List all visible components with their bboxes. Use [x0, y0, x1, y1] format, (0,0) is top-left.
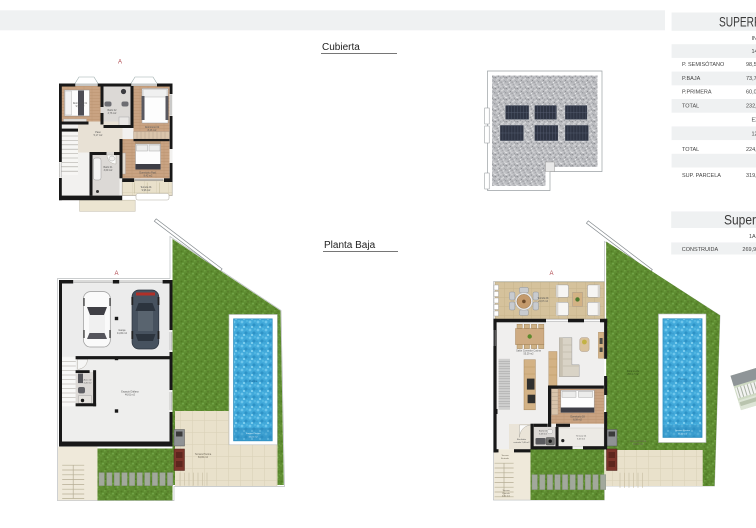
svg-text:8,08 m2: 8,08 m2: [573, 419, 582, 422]
svg-text:73,72: 73,72: [746, 76, 756, 82]
svg-text:P.PRIMERA: P.PRIMERA: [682, 90, 712, 96]
svg-text:3,76 m2: 3,76 m2: [108, 112, 117, 115]
svg-text:A: A: [115, 271, 119, 277]
svg-text:319,73: 319,73: [746, 173, 756, 179]
svg-text:3,69 m2: 3,69 m2: [104, 169, 113, 172]
svg-text:Baño 02: Baño 02: [539, 430, 548, 433]
svg-text:9,96 m2: 9,96 m2: [142, 189, 151, 192]
svg-text:+9,67 m2: +9,67 m2: [538, 300, 549, 303]
svg-text:84,82 m2: 84,82 m2: [633, 443, 644, 446]
svg-text:98,56: 98,56: [746, 62, 756, 68]
svg-text:A: A: [118, 60, 122, 66]
svg-text:Cubierta: Cubierta: [322, 42, 360, 53]
svg-text:41,82 m2: 41,82 m2: [117, 332, 128, 335]
svg-text:8,42 m2: 8,42 m2: [144, 175, 153, 178]
svg-text:TOTAL: TOTAL: [682, 147, 699, 153]
svg-text:269,95: 269,95: [742, 247, 756, 253]
svg-text:3,45 m2: 3,45 m2: [84, 382, 93, 384]
svg-text:232,43: 232,43: [746, 103, 756, 109]
svg-text:Terraza: Terraza: [502, 489, 510, 492]
svg-text:9,51 m2: 9,51 m2: [76, 105, 85, 108]
svg-text:Piscina: Piscina: [678, 377, 687, 381]
svg-text:224,95: 224,95: [746, 147, 756, 153]
svg-text:55,29 m2: 55,29 m2: [524, 353, 535, 356]
svg-text:Terraza Piscina: Terraza Piscina: [246, 432, 262, 435]
svg-text:Planta Baja: Planta Baja: [324, 240, 376, 251]
svg-text:Recibidor: Recibidor: [517, 438, 527, 441]
svg-text:5,17 m2: 5,17 m2: [94, 134, 103, 137]
svg-text:124,65: 124,65: [752, 132, 756, 138]
svg-text:INTERIOR: INTERIOR: [752, 36, 756, 42]
svg-text:A: A: [550, 271, 554, 277]
svg-text:P. SEMISÓTANO: P. SEMISÓTANO: [682, 61, 725, 68]
svg-text:34,02 m2: 34,02 m2: [678, 434, 688, 436]
svg-text:Superfi: Superfi: [724, 213, 756, 228]
svg-text:SUPERFI: SUPERFI: [719, 15, 756, 30]
svg-text:Terraza: Terraza: [501, 454, 509, 457]
svg-text:Terraza 04: Terraza 04: [576, 435, 587, 438]
svg-text:253,47 m2: 253,47 m2: [627, 373, 639, 376]
svg-text:46,61 m2: 46,61 m2: [125, 394, 136, 397]
svg-text:EXTERIOR: EXTERIOR: [752, 117, 756, 123]
svg-text:34,02 m2: 34,02 m2: [248, 437, 258, 439]
svg-text:Parcela: Parcela: [502, 492, 510, 495]
svg-text:8,46 m2: 8,46 m2: [148, 129, 157, 132]
svg-text:84,82 m2: 84,82 m2: [198, 456, 209, 459]
svg-text:Terraza Piscina: Terraza Piscina: [675, 429, 691, 432]
svg-text:CONSTRUIDA: CONSTRUIDA: [682, 247, 719, 253]
svg-text:4,34 m2: 4,34 m2: [502, 496, 511, 498]
svg-text:entrada 7,46 m2: entrada 7,46 m2: [514, 441, 531, 444]
svg-text:P.BAJA: P.BAJA: [682, 76, 701, 82]
svg-text:Piscina: Piscina: [249, 379, 258, 383]
svg-text:60,02: 60,02: [746, 90, 756, 96]
svg-text:SUP. PARCELA: SUP. PARCELA: [682, 173, 721, 179]
svg-text:3,03 m2: 3,03 m2: [577, 438, 586, 440]
svg-text:3,08 m2: 3,08 m2: [539, 433, 548, 435]
svg-text:TOTAL: TOTAL: [682, 103, 699, 109]
svg-text:1A: 1A: [749, 234, 756, 240]
svg-text:Aseo 02: Aseo 02: [83, 379, 92, 382]
svg-text:144,61: 144,61: [752, 49, 756, 55]
svg-text:Entrada: Entrada: [501, 457, 509, 460]
